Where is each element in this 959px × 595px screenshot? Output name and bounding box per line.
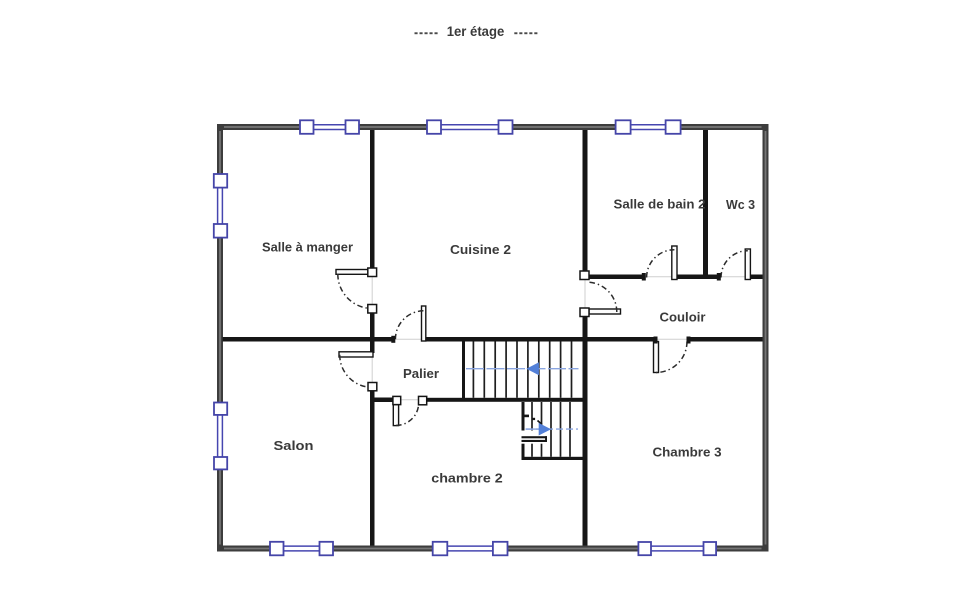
svg-text:1er étage: 1er étage — [447, 24, 505, 39]
svg-text:Salon: Salon — [274, 438, 314, 453]
svg-text:Salle de bain 2: Salle de bain 2 — [614, 197, 706, 212]
svg-text:Chambre 3: Chambre 3 — [653, 444, 722, 459]
svg-text:Couloir: Couloir — [660, 309, 706, 324]
svg-text:Salle à manger: Salle à manger — [262, 240, 353, 255]
svg-text:Cuisine 2: Cuisine 2 — [450, 242, 511, 257]
svg-text:chambre 2: chambre 2 — [431, 471, 503, 486]
svg-text:Palier: Palier — [403, 366, 439, 381]
svg-text:Wc 3: Wc 3 — [726, 197, 755, 212]
